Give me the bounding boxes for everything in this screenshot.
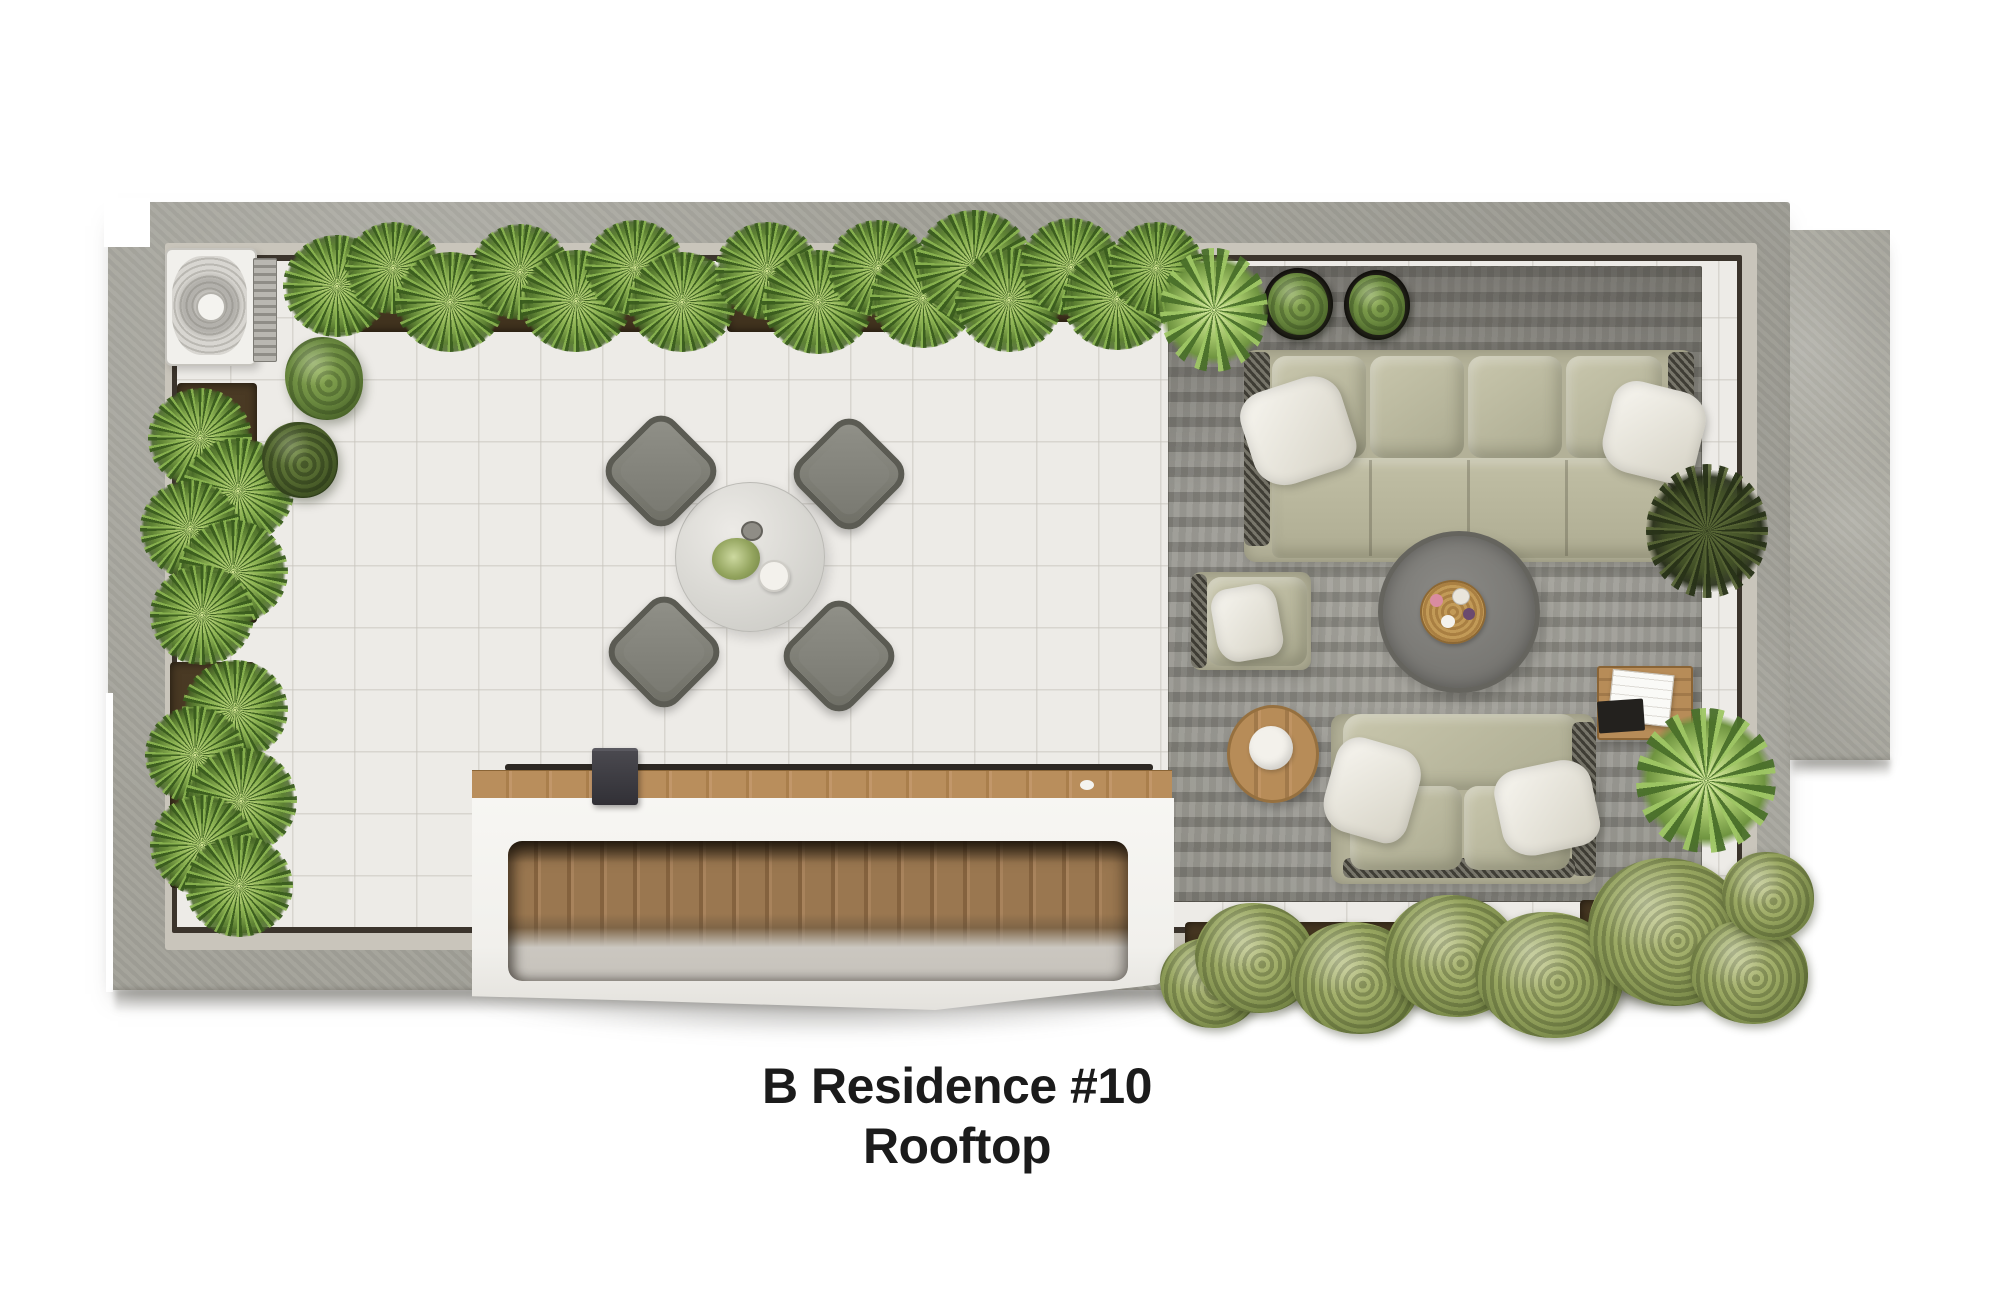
ac-fan-hub [196,292,226,322]
title-line-residence: B Residence #10 [457,1056,1457,1116]
sofa-back-cushion [1370,356,1464,458]
sofa-back-cushion [1468,356,1562,458]
chair-cushion [804,429,895,520]
table-cup [758,560,790,592]
ac-condenser [253,258,277,362]
sofa-seam [1369,460,1372,556]
chair-cushion [794,611,885,702]
round-bush [285,337,363,420]
round-bush [262,422,338,498]
serving-tray [1420,580,1486,644]
wall-extension-panel [1790,230,1890,760]
grass-plant [185,835,293,937]
page-title: B Residence #10 Rooftop [457,1056,1457,1176]
dark-spiky-plant [1646,464,1768,598]
tray-item [1463,608,1475,620]
tray-item [1441,615,1455,628]
rooftop-floor-plan: B Residence #10 Rooftop [0,0,2000,1292]
wall-step-notch [106,693,113,992]
side-table-tray [1249,726,1293,770]
palm-plant [1636,708,1776,853]
tablet-device [592,748,638,805]
book [1597,698,1645,733]
bush-foliage [1349,275,1405,335]
sofa-seam [1565,460,1568,556]
chair-cushion [616,426,707,517]
palm-plant [1160,248,1268,372]
bush-foliage [1268,273,1328,335]
skylight-opening [508,841,1128,981]
table-dish [741,521,763,541]
armchair-frame-hatch [1191,574,1207,668]
tray-item [1430,594,1443,607]
building-shadow [1792,759,1890,777]
potted-bush [1263,268,1333,340]
title-line-rooftop: Rooftop [457,1116,1457,1176]
chair-cushion [619,607,710,698]
grass-plant [150,565,254,665]
wall-step-notch [104,198,150,247]
skylight-sensor-dot [1080,780,1094,790]
potted-bush [1344,270,1410,340]
olive-bush [1722,852,1814,940]
tray-item [1452,588,1470,605]
